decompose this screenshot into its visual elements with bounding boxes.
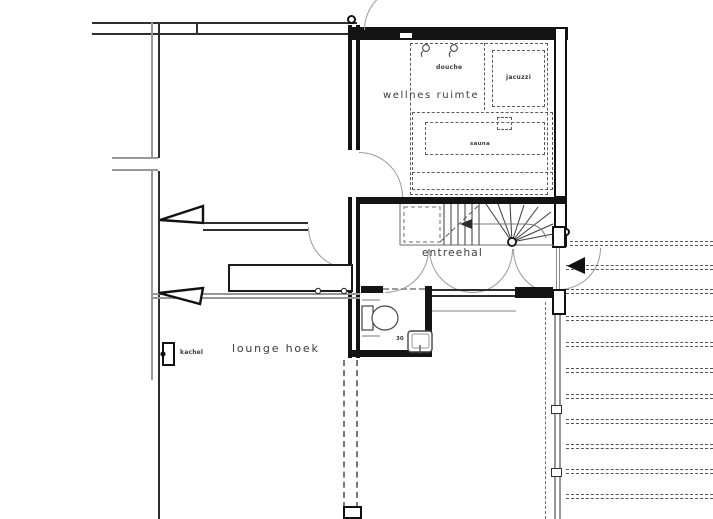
dimension-label: 30: [396, 336, 404, 342]
terrace-region: [566, 238, 713, 519]
room-label-lounge: lounge hoek: [232, 342, 320, 355]
open-boundary-dashed: [343, 360, 345, 508]
decking-lines: [566, 494, 713, 499]
wall-stair-divider: [360, 197, 556, 204]
wall: [151, 22, 153, 158]
door-swing-arc: [308, 227, 350, 269]
fixture-label-jacuzzi: jacuzzi: [506, 74, 531, 81]
wall: [348, 25, 352, 150]
sauna-outline: [425, 122, 545, 155]
wall-opening: [400, 33, 412, 38]
room-label-wellness: wellnes ruimte: [383, 90, 479, 101]
terrace-step-line: [432, 310, 516, 312]
decking-lines: [566, 265, 713, 270]
column: [343, 506, 362, 519]
wall: [92, 33, 349, 35]
wall-tick: [196, 22, 198, 35]
fixture-label-shower: douche: [436, 64, 462, 71]
entrance-door-leaf: [556, 248, 560, 289]
decking-lines: [566, 316, 713, 321]
upper-left-room-region: [162, 36, 347, 221]
wall: [432, 295, 516, 297]
room-label-entrance-hall: entreehal: [422, 247, 483, 259]
sauna-bench-line: [412, 172, 553, 173]
wall: [153, 297, 360, 299]
wall: [92, 22, 357, 24]
decking-lines: [566, 289, 713, 294]
door-swing-arc: [364, 0, 408, 30]
fixture-label-sauna: sauna: [470, 141, 490, 147]
open-boundary-dashed: [356, 360, 358, 508]
wall: [356, 197, 360, 358]
glass-facade: [559, 315, 561, 519]
facade-mullion: [551, 468, 562, 477]
door-hinge-dot: [347, 15, 356, 24]
wall: [153, 293, 360, 295]
facade-mullion: [551, 405, 562, 414]
decking-lines: [566, 419, 713, 424]
wall: [352, 350, 432, 357]
wall: [158, 171, 160, 519]
toilet-door-threshold: [383, 288, 425, 290]
zone-divider-dashed: [484, 43, 485, 110]
glass-facade: [554, 315, 556, 519]
terrace-edge-dashed: [545, 302, 546, 519]
doorway-jamb: [112, 157, 158, 159]
entrance-door-post: [552, 289, 566, 315]
decking-lines: [566, 394, 713, 399]
decking-lines: [566, 342, 713, 347]
decking-lines: [570, 241, 713, 246]
wall: [425, 286, 432, 357]
stove-symbol: [162, 342, 175, 366]
entrance-door-post: [552, 226, 566, 248]
wall: [356, 25, 360, 150]
decking-lines: [566, 469, 713, 474]
wall: [158, 22, 160, 158]
fixture-label-stove: kachel: [180, 349, 203, 356]
counter-sideboard: [228, 264, 353, 292]
wall-east-wellness: [554, 27, 567, 247]
sauna-heater: [497, 117, 512, 130]
floor-plan: wellnes ruimte douche jacuzzi sauna entr…: [0, 0, 713, 519]
wall: [361, 286, 383, 293]
wall: [203, 229, 308, 231]
toilet-region: [362, 294, 424, 350]
wall: [203, 222, 308, 224]
decking-lines: [566, 444, 713, 449]
lounge-region: [162, 300, 342, 515]
wall-band: [515, 287, 553, 298]
decking-lines: [566, 368, 713, 373]
wall: [432, 289, 516, 291]
wall: [151, 171, 153, 380]
